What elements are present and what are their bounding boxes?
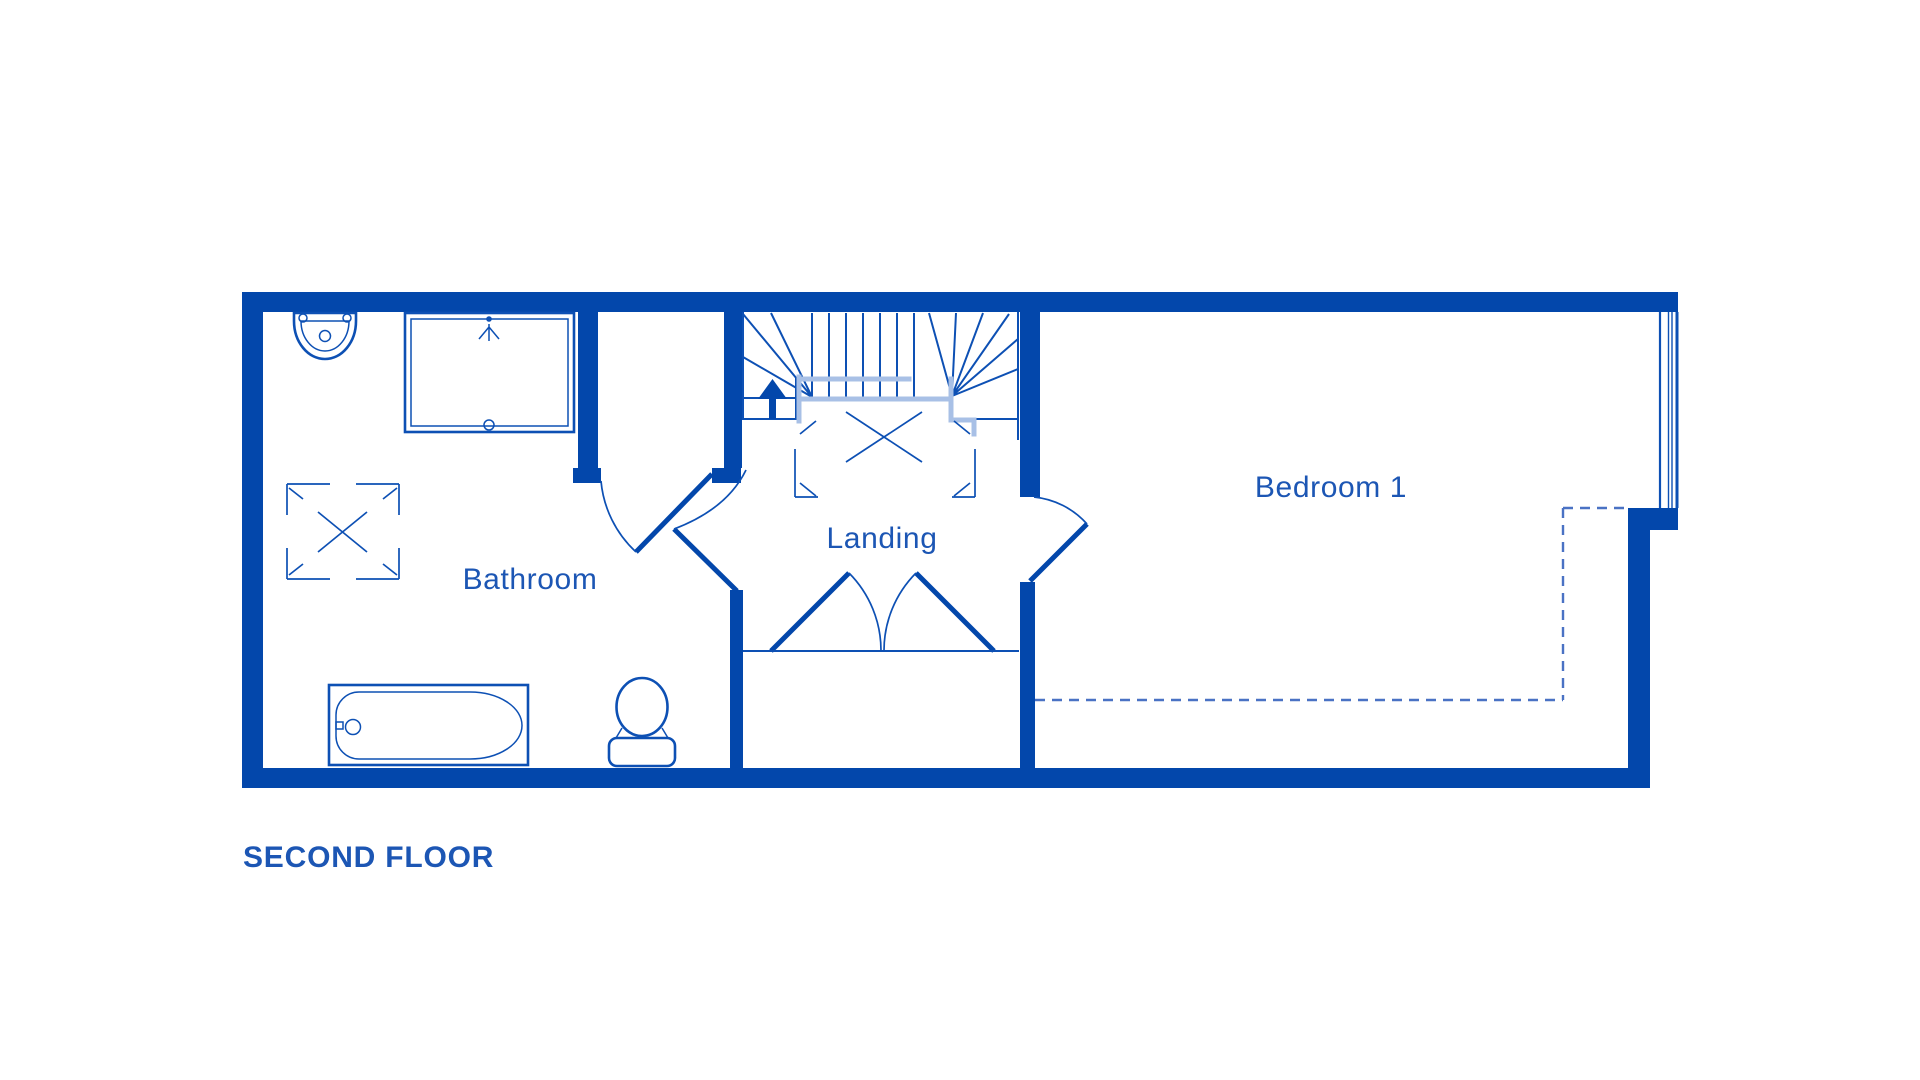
wall-top (242, 292, 1678, 312)
floorplan-drawing (0, 0, 1920, 1080)
rooflight-x-mark (318, 512, 367, 552)
wall-bottom (242, 768, 1650, 788)
room-label-bedroom1: Bedroom 1 (1255, 471, 1407, 505)
stair-void-corner-brackets (795, 449, 975, 497)
eaves-door-right-leaf (916, 573, 994, 651)
wall-bedroom-lower (1020, 582, 1035, 768)
wall-alcove-divider-cap (712, 468, 741, 483)
reduced-headroom-dashed-line (1035, 508, 1628, 700)
window-glazing-lines (1669, 312, 1673, 508)
bath-icon (329, 685, 528, 765)
cupboard-door-leaf (636, 474, 712, 552)
bathroom-rooflight-icon (287, 484, 399, 579)
wall-right-step (1628, 508, 1678, 530)
eaves-door-left-leaf (771, 573, 849, 651)
bedroom-door-leaf (1030, 524, 1087, 581)
bathroom-door-leaf (674, 529, 737, 591)
eaves-door-right-arc (884, 573, 916, 651)
room-label-landing: Landing (827, 522, 938, 556)
wall-right-lower (1628, 530, 1650, 768)
stairs-up-arrow-icon (758, 379, 787, 419)
shower-control (484, 420, 494, 430)
stairs-handrail (799, 377, 974, 434)
toilet-bowl (617, 678, 668, 736)
stairs-right-winder (929, 313, 1018, 396)
bedroom-door-arc (1034, 497, 1087, 524)
toilet-icon (609, 678, 675, 766)
toilet-cistern (609, 738, 675, 766)
sink-basin (301, 321, 349, 351)
doors (601, 470, 1087, 651)
wall-left (242, 292, 263, 788)
bath-inner (336, 692, 522, 759)
window (1660, 312, 1677, 508)
stair-void-corner-ticks (800, 421, 970, 496)
sink-icon (294, 313, 356, 359)
wall-bathroom-divider-cap (573, 468, 601, 483)
stair-void-rooflight-icon (795, 412, 975, 497)
shower-head-icon (479, 316, 499, 341)
room-label-bathroom: Bathroom (463, 563, 598, 597)
stairs-left-winder (743, 313, 812, 397)
cupboard-door-arc (601, 481, 636, 552)
wall-cupboard-left (730, 590, 743, 768)
stairs-treads (812, 313, 914, 397)
wall-bathroom-divider (578, 312, 598, 468)
stairs (743, 312, 1018, 440)
sink-outer (294, 313, 356, 359)
stair-void-x-mark (846, 412, 922, 462)
floor-title: SECOND FLOOR (243, 841, 494, 875)
bath-tap (346, 720, 361, 735)
wall-bedroom-upper (1020, 312, 1040, 497)
wall-alcove-divider (724, 312, 742, 468)
exterior-and-interior-walls (242, 292, 1678, 788)
shower-enclosure-icon (405, 313, 574, 432)
eaves-door-left-arc (849, 573, 881, 651)
floorplan-canvas: Bathroom Landing Bedroom 1 SECOND FLOOR (0, 0, 1920, 1080)
bath-overflow (336, 722, 343, 729)
sink-drain (320, 331, 331, 342)
